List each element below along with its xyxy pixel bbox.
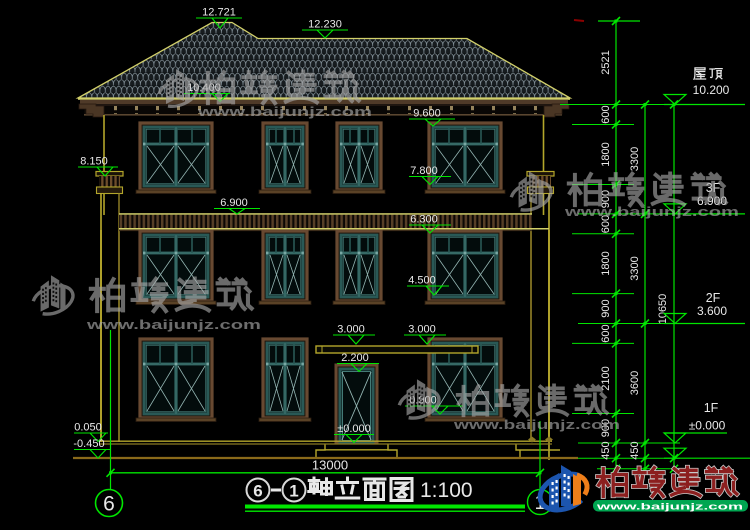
svg-text:-0.450: -0.450 bbox=[73, 438, 104, 450]
svg-text:9.600: 9.600 bbox=[413, 108, 441, 120]
svg-text:1F: 1F bbox=[704, 401, 719, 415]
svg-text:900: 900 bbox=[600, 299, 612, 317]
svg-text:6: 6 bbox=[253, 482, 262, 501]
svg-text:4.500: 4.500 bbox=[408, 275, 436, 287]
svg-text:3.000: 3.000 bbox=[408, 324, 436, 336]
svg-text:10650: 10650 bbox=[657, 294, 669, 325]
svg-text:1800: 1800 bbox=[600, 251, 612, 275]
svg-text:3600: 3600 bbox=[629, 371, 641, 395]
svg-text:2521: 2521 bbox=[600, 50, 612, 74]
svg-text:12.721: 12.721 bbox=[202, 7, 236, 19]
svg-text:10.200: 10.200 bbox=[693, 83, 730, 97]
svg-text:www.baijunjz.com: www.baijunjz.com bbox=[452, 418, 620, 432]
svg-text:±0.000: ±0.000 bbox=[337, 423, 371, 435]
svg-text:1800: 1800 bbox=[600, 142, 612, 166]
svg-text:3300: 3300 bbox=[629, 256, 641, 280]
svg-text:600: 600 bbox=[600, 105, 612, 123]
svg-text:12.230: 12.230 bbox=[308, 19, 342, 31]
svg-text:±0.000: ±0.000 bbox=[689, 419, 726, 433]
svg-text:8.150: 8.150 bbox=[80, 156, 108, 168]
svg-text:3.000: 3.000 bbox=[337, 324, 365, 336]
svg-text:2100: 2100 bbox=[600, 366, 612, 390]
svg-text:www.baijunjz.com: www.baijunjz.com bbox=[85, 318, 261, 332]
svg-text:600: 600 bbox=[600, 324, 612, 342]
svg-text:www.baijunjz.com: www.baijunjz.com bbox=[196, 105, 372, 119]
svg-text:2F: 2F bbox=[706, 291, 721, 305]
svg-text:www.baijunjz.com: www.baijunjz.com bbox=[595, 502, 743, 513]
svg-text:6: 6 bbox=[103, 493, 115, 516]
svg-text:3300: 3300 bbox=[629, 147, 641, 171]
svg-text:2.200: 2.200 bbox=[341, 352, 369, 364]
svg-text:www.baijunjz.com: www.baijunjz.com bbox=[563, 205, 739, 219]
svg-text:1: 1 bbox=[289, 482, 298, 501]
svg-text:6.900: 6.900 bbox=[220, 197, 248, 209]
svg-text:450: 450 bbox=[629, 441, 641, 459]
svg-text:3.600: 3.600 bbox=[697, 304, 727, 318]
svg-text:0.050: 0.050 bbox=[74, 422, 102, 434]
svg-text:6.300: 6.300 bbox=[410, 214, 438, 226]
svg-text:450: 450 bbox=[600, 441, 612, 459]
svg-text:7.800: 7.800 bbox=[410, 165, 438, 177]
svg-text:1:100: 1:100 bbox=[420, 479, 473, 502]
svg-text:13000: 13000 bbox=[312, 458, 348, 473]
